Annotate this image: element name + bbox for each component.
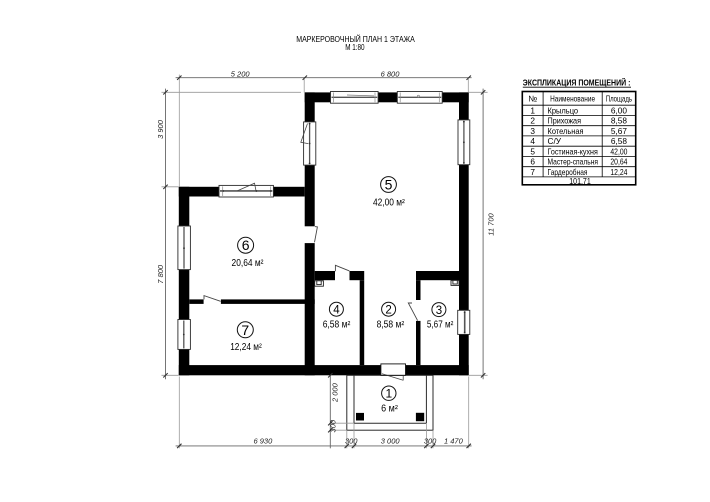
- svg-text:5,67 м²: 5,67 м²: [427, 320, 454, 331]
- svg-text:2: 2: [385, 304, 391, 316]
- svg-text:Котельная: Котельная: [548, 126, 584, 136]
- svg-text:Прихожая: Прихожая: [548, 116, 582, 126]
- svg-text:М 1:80: М 1:80: [345, 42, 365, 52]
- svg-text:300: 300: [329, 419, 338, 432]
- svg-text:4: 4: [333, 304, 340, 316]
- svg-text:101,71: 101,71: [569, 176, 591, 186]
- svg-text:7: 7: [530, 167, 535, 177]
- svg-text:3: 3: [436, 305, 442, 317]
- svg-text:6,58 м²: 6,58 м²: [323, 320, 351, 331]
- svg-text:7: 7: [241, 322, 249, 338]
- svg-text:3 900: 3 900: [156, 119, 165, 139]
- svg-text:20,64: 20,64: [610, 157, 627, 167]
- svg-text:8,58 м²: 8,58 м²: [377, 320, 405, 331]
- svg-text:Наименование: Наименование: [550, 93, 595, 103]
- svg-text:7 800: 7 800: [156, 264, 165, 284]
- svg-text:Площадь: Площадь: [606, 93, 632, 103]
- svg-text:6 930: 6 930: [254, 437, 274, 446]
- svg-text:20,64 м²: 20,64 м²: [232, 258, 265, 269]
- svg-text:42,00: 42,00: [610, 146, 627, 156]
- svg-text:300: 300: [424, 437, 437, 446]
- svg-text:4: 4: [530, 136, 535, 146]
- svg-text:6: 6: [242, 237, 250, 253]
- svg-text:Мастер-спальня: Мастер-спальня: [548, 157, 599, 167]
- svg-text:5 200: 5 200: [231, 70, 251, 79]
- svg-text:Гостиная-кухня: Гостиная-кухня: [548, 146, 598, 156]
- svg-text:5: 5: [385, 177, 393, 193]
- svg-text:8,58: 8,58: [611, 116, 628, 126]
- svg-text:2: 2: [530, 116, 535, 126]
- svg-text:12,24 м²: 12,24 м²: [230, 342, 262, 353]
- svg-text:6 800: 6 800: [381, 70, 401, 79]
- svg-text:С/У: С/У: [548, 136, 562, 146]
- svg-text:11 700: 11 700: [486, 212, 495, 235]
- svg-text:1: 1: [530, 105, 535, 115]
- svg-text:6: 6: [530, 157, 535, 167]
- svg-text:6,00: 6,00: [611, 105, 628, 115]
- svg-text:12,24: 12,24: [610, 167, 627, 177]
- svg-text:1 470: 1 470: [444, 437, 464, 446]
- svg-text:5,67: 5,67: [611, 126, 628, 136]
- svg-text:ЭКСПЛИКАЦИЯ ПОМЕЩЕНИЙ :: ЭКСПЛИКАЦИЯ ПОМЕЩЕНИЙ :: [523, 77, 631, 88]
- svg-text:2 000: 2 000: [331, 382, 340, 403]
- svg-text:1: 1: [385, 387, 392, 401]
- svg-text:6 м²: 6 м²: [381, 403, 398, 414]
- svg-text:6,58: 6,58: [611, 136, 628, 146]
- svg-text:42,00 м²: 42,00 м²: [373, 197, 406, 208]
- svg-text:Крыльцо: Крыльцо: [548, 105, 579, 115]
- svg-text:5: 5: [530, 146, 535, 156]
- svg-text:300: 300: [345, 437, 358, 446]
- svg-text:№: №: [528, 93, 537, 103]
- svg-text:3 000: 3 000: [381, 437, 401, 446]
- svg-text:3: 3: [530, 126, 535, 136]
